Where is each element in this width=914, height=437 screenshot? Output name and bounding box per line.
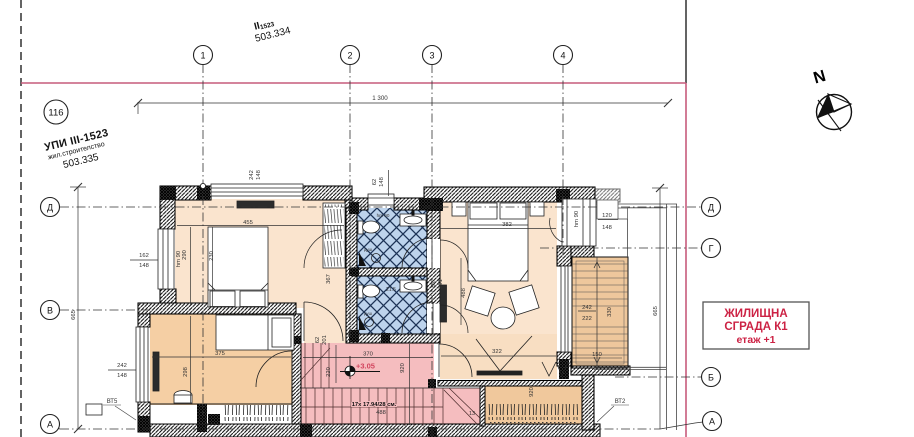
- svg-text:ВТ2: ВТ2: [615, 399, 626, 405]
- svg-text:201: 201: [322, 335, 328, 345]
- svg-text:148: 148: [379, 177, 385, 187]
- svg-text:920: 920: [529, 387, 535, 397]
- svg-text:322: 322: [492, 349, 502, 355]
- svg-text:488: 488: [461, 288, 467, 298]
- svg-text:Г: Г: [709, 244, 714, 254]
- svg-text:148: 148: [256, 170, 262, 180]
- svg-text:hm 90: hm 90: [377, 213, 390, 218]
- svg-text:Д: Д: [708, 203, 714, 213]
- svg-text:Д: Д: [47, 203, 53, 213]
- svg-text:298: 298: [183, 367, 189, 377]
- svg-text:290: 290: [182, 250, 188, 260]
- svg-text:242: 242: [117, 363, 127, 369]
- svg-text:375: 375: [215, 351, 225, 357]
- svg-text:162: 162: [139, 253, 149, 259]
- svg-text:ЖИЛИЩНА: ЖИЛИЩНА: [723, 308, 787, 320]
- svg-text:92: 92: [431, 281, 437, 287]
- svg-text:В: В: [47, 306, 53, 316]
- svg-text:242: 242: [582, 305, 592, 311]
- svg-text:62: 62: [372, 179, 378, 185]
- svg-text:116: 116: [48, 108, 63, 119]
- svg-text:hm 90: hm 90: [574, 211, 580, 227]
- svg-text:382: 382: [502, 222, 512, 228]
- svg-text:150: 150: [592, 352, 602, 358]
- svg-text:1 300: 1 300: [372, 95, 388, 102]
- svg-text:242: 242: [249, 170, 255, 180]
- svg-text:62: 62: [315, 337, 321, 343]
- svg-text:13: 13: [469, 411, 475, 417]
- svg-text:21.5: 21.5: [386, 287, 396, 293]
- svg-text:+3.05: +3.05: [356, 362, 375, 371]
- svg-text:СГРАДА К1: СГРАДА К1: [724, 321, 788, 333]
- svg-text:455: 455: [243, 220, 253, 226]
- svg-text:17x 17.94/28 см.: 17x 17.94/28 см.: [352, 402, 397, 408]
- svg-text:N: N: [811, 67, 827, 88]
- svg-text:488: 488: [376, 410, 386, 416]
- svg-text:ВТ5: ВТ5: [107, 399, 118, 405]
- svg-text:367: 367: [326, 274, 332, 284]
- svg-text:душ: душ: [364, 247, 373, 252]
- svg-text:Б: Б: [708, 373, 714, 383]
- svg-text:201: 201: [438, 279, 444, 289]
- svg-text:220: 220: [326, 367, 332, 377]
- svg-text:3: 3: [429, 51, 434, 61]
- svg-text:230: 230: [209, 251, 215, 261]
- svg-text:920: 920: [400, 363, 406, 373]
- svg-text:душ: душ: [364, 311, 373, 316]
- svg-text:222: 222: [582, 316, 592, 322]
- svg-text:665: 665: [71, 310, 77, 320]
- svg-text:148: 148: [602, 225, 612, 231]
- svg-text:148: 148: [117, 373, 127, 379]
- svg-text:етаж +1: етаж +1: [736, 334, 775, 346]
- svg-text:148: 148: [139, 263, 149, 269]
- svg-text:120: 120: [602, 213, 612, 219]
- svg-text:2: 2: [347, 51, 352, 61]
- svg-text:330: 330: [607, 307, 613, 317]
- svg-text:1: 1: [200, 51, 205, 61]
- svg-text:370: 370: [363, 352, 373, 358]
- svg-text:А: А: [709, 417, 715, 427]
- svg-text:А: А: [47, 420, 53, 430]
- svg-text:4: 4: [560, 51, 565, 61]
- svg-text:665: 665: [653, 306, 659, 316]
